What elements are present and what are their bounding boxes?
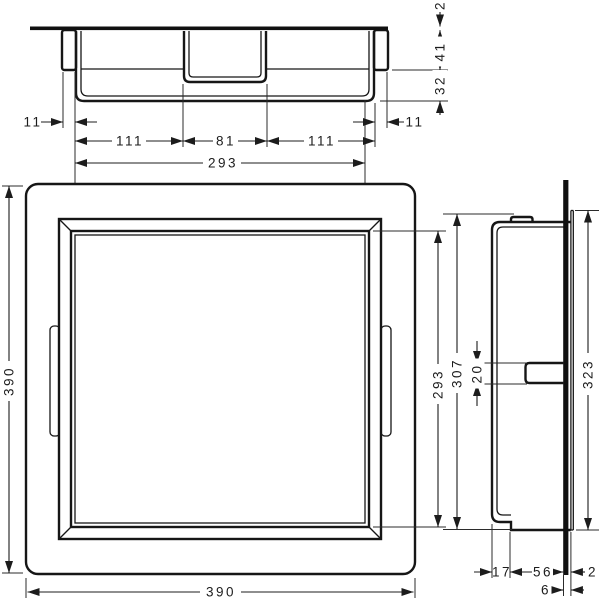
side-clip-tab [526, 363, 564, 383]
dim-label: 56 [533, 565, 553, 580]
wall-surface-line [563, 180, 568, 575]
dim-label: 2 [588, 565, 598, 580]
dim-label: 17 [492, 565, 512, 580]
center-insert-outer [184, 31, 266, 82]
dim-front-width: 390 [28, 585, 414, 600]
dim-top-inner-width: 293 [75, 156, 365, 172]
niche-dimension-drawing: 11 11 111 81 111 293 [0, 0, 600, 600]
front-view-drawing [26, 184, 415, 574]
dim-top-plate-proud: 2 [433, 0, 448, 27]
dim-top-overhang-right: 11 [353, 115, 425, 130]
frame-lip-right [374, 30, 388, 70]
dim-label: 323 [581, 359, 596, 389]
dim-label: 41 [433, 41, 448, 61]
dim-label: 6 [541, 583, 551, 598]
dim-side-back-gap: 17 [474, 565, 512, 580]
technical-drawing-page: 11 11 111 81 111 293 [0, 0, 600, 600]
dim-side-inner-height: 307 [450, 214, 465, 529]
side-view-drawing [492, 180, 573, 575]
dim-label: 293 [208, 156, 238, 171]
dim-top-overhang-left: 11 [23, 115, 97, 130]
dim-top-inner-center: 81 [183, 134, 267, 150]
dim-label: 111 [116, 134, 144, 149]
dim-front-height: 390 [2, 186, 17, 573]
dim-top-body-depth: 32 [433, 70, 448, 115]
dim-label: 390 [2, 366, 17, 396]
top-view-drawing [30, 27, 388, 102]
dim-label: 293 [431, 369, 446, 399]
dim-label: 32 [433, 75, 448, 95]
dim-top-inner-right: 111 [267, 134, 375, 150]
dim-label: 390 [206, 585, 236, 600]
dim-front-opening-height: 293 [431, 231, 446, 527]
dim-label: 307 [450, 358, 465, 388]
dim-label: 11 [23, 115, 42, 130]
dim-side-lip-depth: 6 [541, 583, 584, 598]
dim-side-plate-height: 323 [581, 211, 596, 531]
dim-label: 111 [308, 134, 336, 149]
dim-top-frame-depth: 41 [433, 30, 448, 70]
dim-label: 11 [405, 115, 424, 130]
dim-side-clip-height: 20 [470, 341, 485, 406]
dim-side-body-depth: 56 [510, 565, 563, 580]
dim-label: 20 [470, 363, 485, 383]
wall-flange-line [30, 27, 388, 31]
dim-side-plate-proud: 2 [571, 565, 598, 580]
opening-bevel-inner [71, 231, 369, 527]
dim-label: 81 [216, 134, 236, 149]
frame-lip-left [62, 30, 76, 70]
dim-top-inner-left: 111 [75, 134, 183, 150]
dim-label: 2 [433, 0, 448, 10]
